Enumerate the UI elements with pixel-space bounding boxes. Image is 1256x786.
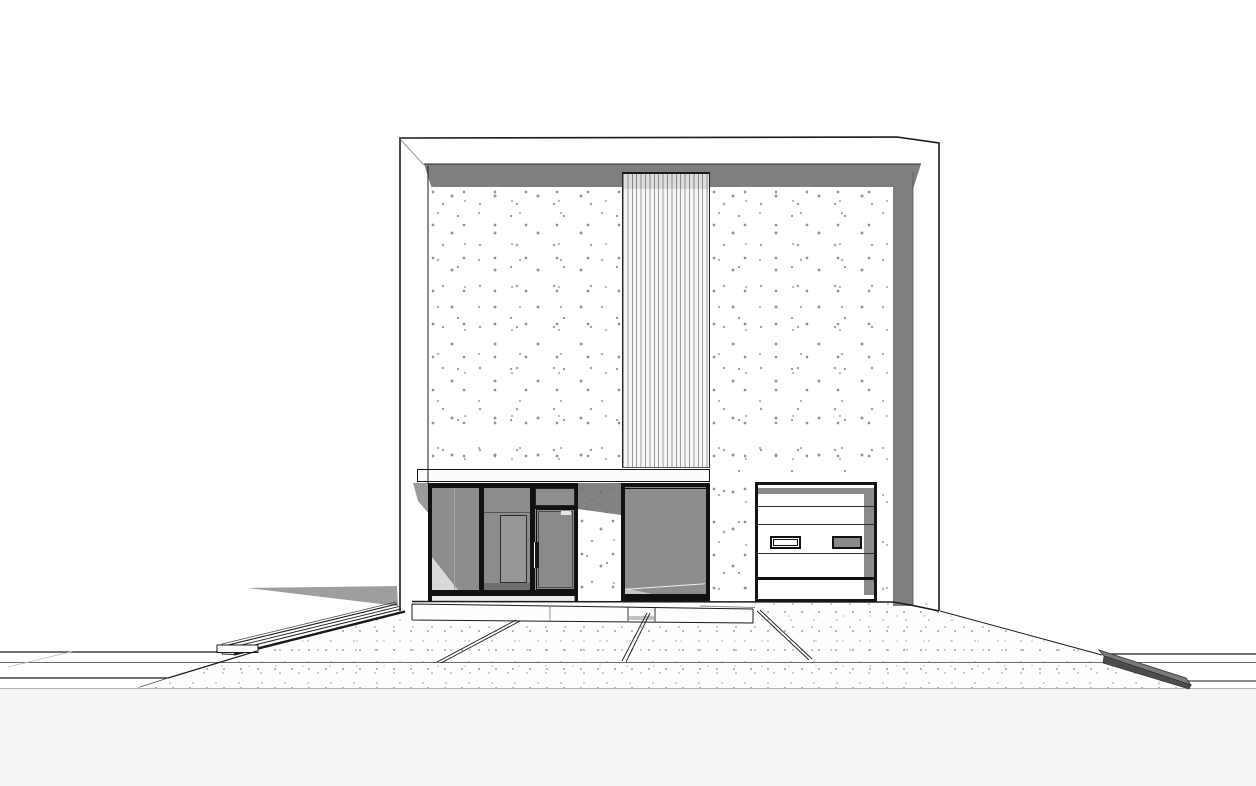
right-side-return	[893, 170, 913, 606]
left-concrete-wall	[429, 187, 622, 470]
slat-top-shade	[623, 174, 709, 189]
garage-panel-line	[758, 524, 874, 525]
foreground-strip	[0, 689, 1256, 786]
elevation-viewport[interactable]	[0, 0, 1256, 786]
garage-door[interactable]	[755, 482, 877, 602]
garage-panel-line-thick	[758, 577, 874, 580]
glazing-reflection-line	[454, 488, 455, 590]
door-transom	[535, 488, 575, 506]
interior-reflection-frame	[500, 515, 527, 583]
parapet-return-edge	[400, 139, 424, 165]
vertical-slat-cladding	[622, 172, 710, 468]
garage-panel-line	[758, 506, 874, 507]
left-curb-block	[217, 645, 258, 653]
entry-door[interactable]	[536, 509, 575, 590]
interior-reflection-hline	[484, 512, 530, 513]
door-inner-outline	[538, 511, 573, 588]
entry-canopy	[417, 469, 710, 482]
door-chip	[561, 511, 571, 515]
glazing-left-frame	[428, 483, 432, 602]
glazing-section-b	[621, 483, 710, 602]
glazing-b-right-frame	[706, 483, 710, 602]
garage-panel-line	[758, 553, 874, 554]
sill-understrip	[432, 596, 574, 602]
garage-window-left-inner	[773, 539, 798, 546]
storefront-glazing	[428, 483, 578, 602]
glazing-b-reflection-line	[627, 583, 705, 589]
porch-slab	[412, 604, 753, 623]
glazing-mullion	[479, 488, 484, 590]
garage-window-left	[770, 536, 801, 549]
glazing-b-sill	[621, 594, 710, 602]
garage-window-right	[832, 536, 862, 549]
garage-top-shadow	[758, 488, 864, 494]
glazing-b-left-frame	[621, 483, 625, 602]
door-handle-bar[interactable]	[535, 542, 539, 568]
glazing-b-top-hairline	[623, 487, 708, 488]
glazing-b-top-frame	[621, 483, 710, 489]
interior-floor-shadow	[484, 583, 530, 590]
